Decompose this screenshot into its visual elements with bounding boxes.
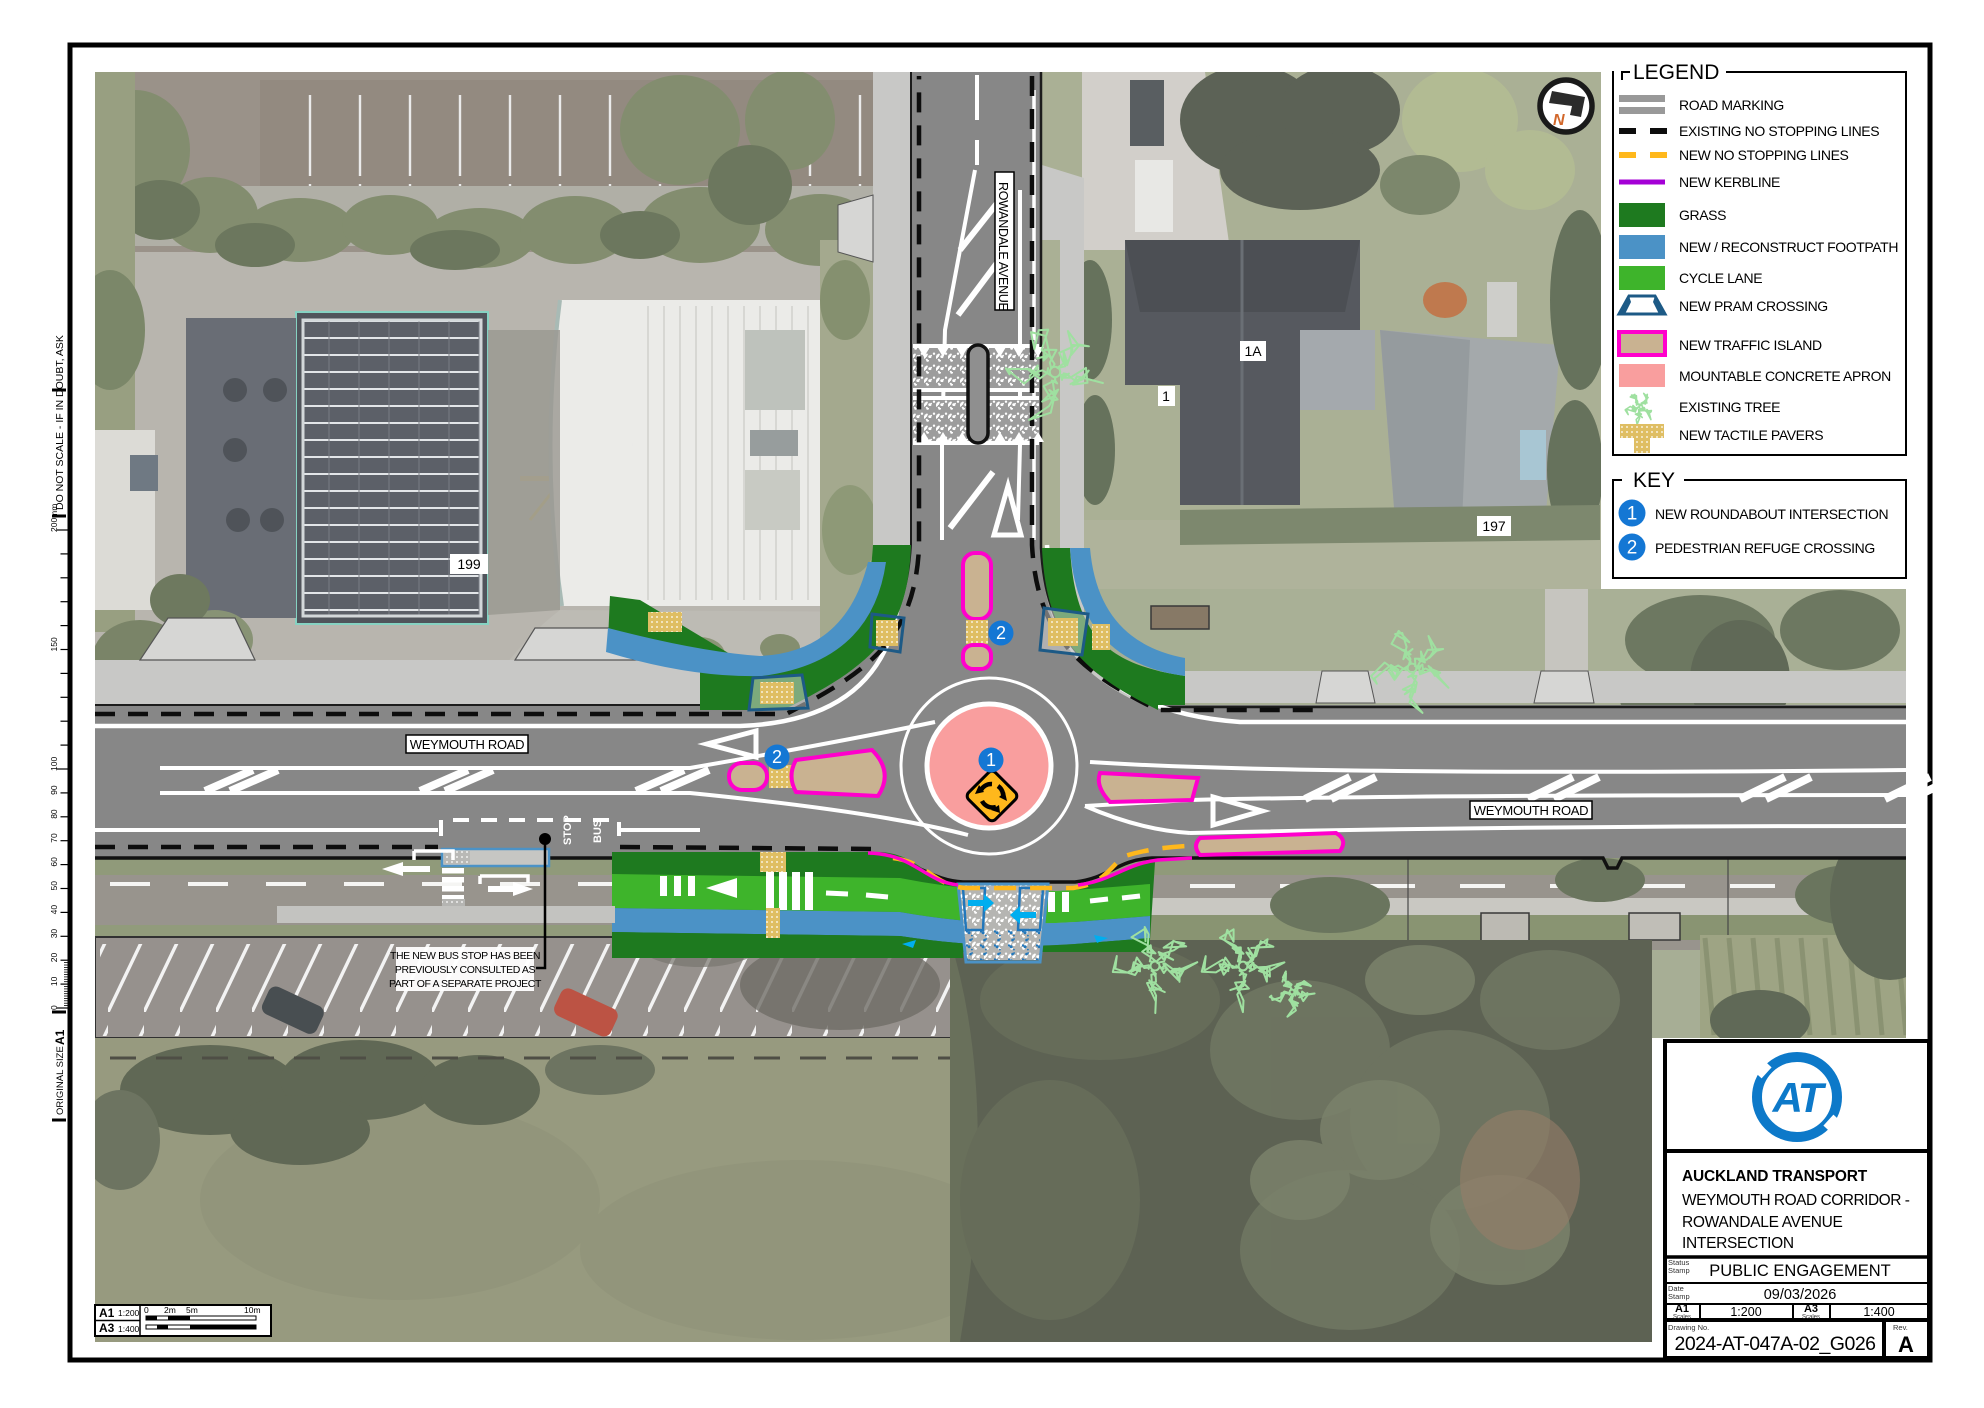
- svg-text:1A: 1A: [1244, 343, 1262, 359]
- svg-text:A3: A3: [99, 1321, 115, 1335]
- svg-text:09/03/2026: 09/03/2026: [1764, 1287, 1837, 1303]
- svg-text:MOUNTABLE CONCRETE APRON: MOUNTABLE CONCRETE APRON: [1679, 368, 1891, 384]
- svg-text:NEW KERBLINE: NEW KERBLINE: [1679, 174, 1780, 190]
- svg-text:PART OF A SEPARATE PROJECT: PART OF A SEPARATE PROJECT: [389, 978, 542, 990]
- svg-text:0: 0: [144, 1305, 149, 1315]
- svg-text:80: 80: [49, 809, 59, 819]
- svg-text:10: 10: [49, 976, 59, 986]
- svg-text:100: 100: [49, 757, 59, 771]
- svg-text:GRASS: GRASS: [1679, 207, 1726, 223]
- svg-text:A1: A1: [99, 1306, 115, 1320]
- svg-text:Rev.: Rev.: [1893, 1323, 1908, 1332]
- svg-text:A: A: [1898, 1332, 1914, 1357]
- svg-text:5m: 5m: [186, 1305, 198, 1315]
- svg-text:NEW TRAFFIC ISLAND: NEW TRAFFIC ISLAND: [1679, 337, 1822, 353]
- svg-text:BUS: BUS: [592, 820, 604, 843]
- svg-text:Stamp: Stamp: [1668, 1266, 1690, 1275]
- svg-text:200mm: 200mm: [49, 504, 59, 532]
- svg-text:197: 197: [1482, 518, 1506, 534]
- svg-text:LEGEND: LEGEND: [1633, 61, 1719, 84]
- svg-text:1:400: 1:400: [118, 1324, 140, 1334]
- svg-text:199: 199: [457, 556, 481, 572]
- svg-text:N: N: [1553, 112, 1565, 129]
- svg-text:1: 1: [1627, 504, 1638, 525]
- svg-text:1: 1: [1162, 388, 1170, 404]
- svg-text:2024-AT-047A-02_G026: 2024-AT-047A-02_G026: [1674, 1333, 1875, 1355]
- svg-text:2: 2: [1627, 538, 1638, 559]
- svg-text:EXISTING NO STOPPING LINES: EXISTING NO STOPPING LINES: [1679, 123, 1879, 139]
- svg-text:NEW ROUNDABOUT INTERSECTION: NEW ROUNDABOUT INTERSECTION: [1655, 506, 1888, 522]
- svg-text:60: 60: [49, 857, 59, 867]
- svg-text:PREVIOUSLY CONSULTED AS: PREVIOUSLY CONSULTED AS: [395, 964, 536, 976]
- svg-text:ROAD MARKING: ROAD MARKING: [1679, 97, 1784, 113]
- svg-text:STOP: STOP: [562, 815, 574, 845]
- svg-text:2: 2: [772, 747, 782, 767]
- svg-text:NEW TACTILE PAVERS: NEW TACTILE PAVERS: [1679, 427, 1823, 443]
- svg-text:0: 0: [49, 1005, 59, 1010]
- svg-text:70: 70: [49, 833, 59, 843]
- svg-text:WEYMOUTH ROAD: WEYMOUTH ROAD: [410, 737, 525, 752]
- svg-text:1:400: 1:400: [1863, 1305, 1894, 1319]
- svg-text:ROWANDALE AVENUE: ROWANDALE AVENUE: [996, 182, 1010, 311]
- svg-text:KEY: KEY: [1633, 469, 1675, 492]
- svg-text:2m: 2m: [164, 1305, 176, 1315]
- svg-text:WEYMOUTH ROAD: WEYMOUTH ROAD: [1474, 803, 1589, 818]
- svg-text:AT: AT: [1772, 1074, 1827, 1121]
- svg-text:1:200: 1:200: [1730, 1305, 1761, 1319]
- svg-text:A3: A3: [1804, 1303, 1818, 1315]
- svg-text:Stamp: Stamp: [1668, 1292, 1690, 1301]
- svg-text:2: 2: [996, 623, 1006, 643]
- svg-text:90: 90: [49, 785, 59, 795]
- svg-text:ORIGINAL SIZE: ORIGINAL SIZE: [55, 1046, 66, 1115]
- svg-text:INTERSECTION: INTERSECTION: [1682, 1235, 1794, 1252]
- svg-text:ROWANDALE AVENUE: ROWANDALE AVENUE: [1682, 1214, 1843, 1231]
- svg-text:WEYMOUTH ROAD CORRIDOR -: WEYMOUTH ROAD CORRIDOR -: [1682, 1192, 1910, 1209]
- svg-text:AUCKLAND TRANSPORT: AUCKLAND TRANSPORT: [1682, 1168, 1868, 1185]
- svg-text:A1: A1: [1675, 1303, 1689, 1315]
- svg-text:20: 20: [49, 952, 59, 962]
- svg-text:40: 40: [49, 905, 59, 915]
- svg-text:Scales: Scales: [1673, 1315, 1691, 1321]
- svg-text:10m: 10m: [244, 1305, 261, 1315]
- svg-text:Drawing No.: Drawing No.: [1668, 1323, 1709, 1332]
- svg-text:1:200: 1:200: [118, 1308, 140, 1318]
- svg-text:EXISTING TREE: EXISTING TREE: [1679, 399, 1780, 415]
- svg-text:50: 50: [49, 881, 59, 891]
- svg-text:PEDESTRIAN REFUGE CROSSING: PEDESTRIAN REFUGE CROSSING: [1655, 540, 1875, 556]
- svg-text:1: 1: [986, 750, 996, 770]
- svg-text:Scales: Scales: [1802, 1315, 1820, 1321]
- svg-text:NEW NO STOPPING LINES: NEW NO STOPPING LINES: [1679, 147, 1849, 163]
- svg-text:150: 150: [49, 637, 59, 651]
- svg-text:PUBLIC ENGAGEMENT: PUBLIC ENGAGEMENT: [1709, 1262, 1891, 1280]
- svg-text:DO NOT SCALE - IF IN DOUBT, AS: DO NOT SCALE - IF IN DOUBT, ASK: [54, 335, 66, 510]
- svg-text:THE NEW BUS STOP HAS BEEN: THE NEW BUS STOP HAS BEEN: [390, 950, 540, 962]
- svg-text:30: 30: [49, 929, 59, 939]
- svg-text:A1: A1: [53, 1029, 67, 1045]
- svg-text:NEW / RECONSTRUCT FOOTPATH: NEW / RECONSTRUCT FOOTPATH: [1679, 239, 1898, 255]
- svg-text:NEW PRAM CROSSING: NEW PRAM CROSSING: [1679, 298, 1828, 314]
- svg-text:CYCLE LANE: CYCLE LANE: [1679, 270, 1762, 286]
